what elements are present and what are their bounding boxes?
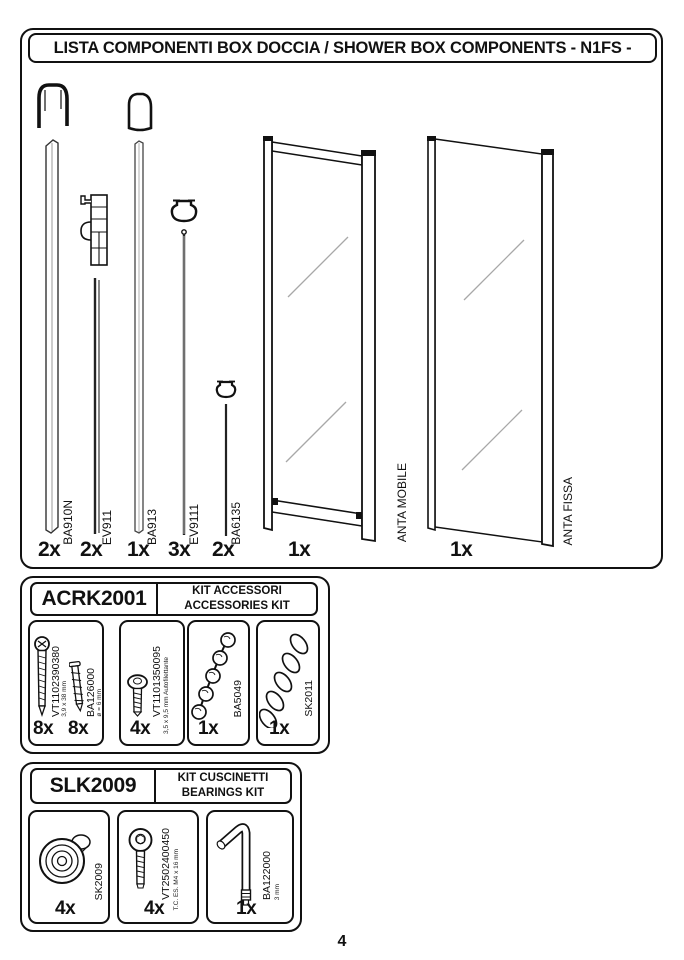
kit-title-en: ACCESSORIES KIT	[184, 599, 289, 614]
kit-item-cell: VT1101350095 3,5 x 9,5 mm Autofilettante…	[119, 620, 185, 746]
kit-item-spec: 3,9 x 38 mm	[62, 681, 69, 717]
long-screw-icon	[33, 636, 51, 718]
component-drawing-ba910n	[30, 78, 74, 538]
bracket-profile-icon	[76, 192, 114, 538]
kit-item-code: BA122000	[262, 851, 273, 900]
component-drawing-ev9111	[168, 196, 200, 538]
kit-title-it: KIT ACCESSORI	[192, 584, 282, 599]
kit-item-qty: 8x	[68, 718, 88, 740]
sliding-door-panel-icon	[258, 132, 398, 544]
kit-item-cell: SK2009 4x	[28, 810, 110, 924]
cover-caps-icon	[259, 628, 309, 728]
kit-item-qty: 1x	[236, 898, 256, 920]
kit-item-code: SK2011	[304, 680, 315, 717]
kit-title-it: KIT CUSCINETTI	[178, 771, 269, 786]
cap-profile-icon	[122, 90, 156, 538]
component-qty: 1x	[288, 538, 310, 562]
kit-item-code: VT1101350095	[152, 646, 163, 717]
component-drawing-ev911	[76, 192, 114, 538]
page-number: 4	[0, 933, 684, 951]
kit-item-qty: 1x	[269, 718, 289, 740]
component-qty: 3x	[168, 538, 190, 562]
component-qty: 2x	[38, 538, 60, 562]
kit-item-code: BA126000	[86, 668, 97, 717]
wall-anchor-icon	[69, 660, 86, 716]
kit-title-en: BEARINGS KIT	[182, 786, 264, 801]
component-qty: 1x	[127, 538, 149, 562]
kit-item-code: VT2502400450	[161, 828, 172, 900]
kit-item-cell: SK2011 1x	[256, 620, 320, 746]
kit-item-spec: ø = 6 mm	[97, 689, 104, 717]
accessories-kit-header: ACRK2001 KIT ACCESSORI ACCESSORIES KIT	[30, 582, 318, 616]
kit-item-spec: T.C. ES. M4 x 16 mm	[174, 849, 181, 910]
kit-item-qty: 1x	[198, 718, 218, 740]
u-channel-profile-icon	[30, 78, 74, 538]
components-sheet-page: LISTA COMPONENTI BOX DOCCIA / SHOWER BOX…	[0, 0, 684, 960]
kit-item-qty: 4x	[144, 898, 164, 920]
component-code-label: BA910N	[62, 500, 74, 545]
kit-item-qty: 8x	[33, 718, 53, 740]
kit-item-code: SK2009	[94, 863, 105, 900]
kit-item-cell: BA5049 1x	[187, 620, 250, 746]
component-qty: 1x	[450, 538, 472, 562]
component-code-label: ANTA MOBILE	[396, 463, 408, 542]
component-drawing-anta-fissa	[424, 130, 566, 550]
component-code-label: EV911	[101, 510, 113, 545]
kit-item-code: VT1102390380	[51, 646, 62, 717]
component-drawing-ba913	[122, 90, 156, 538]
ball-chain-icon	[191, 630, 237, 722]
grommet-clip-icon	[168, 196, 200, 538]
component-code-label: ANTA FISSA	[562, 477, 574, 545]
roller-wheel-icon	[36, 828, 96, 886]
kit-item-cell: VT1102390380 3,9 x 38 mm 8x BA126000 ø =…	[28, 620, 104, 746]
fixed-glass-panel-icon	[424, 130, 566, 550]
kit-item-spec: 3,5 x 9,5 mm Autofilettante	[164, 657, 171, 734]
kit-item-spec: 3 mm	[275, 884, 282, 900]
component-qty: 2x	[212, 538, 234, 562]
kit-code: SLK2009	[32, 770, 156, 802]
component-drawing-anta-mobile	[258, 132, 398, 544]
kit-item-cell: VT2502400450 T.C. ES. M4 x 16 mm 4x	[117, 810, 199, 924]
cap-screw-icon	[127, 828, 154, 890]
kit-item-qty: 4x	[55, 898, 75, 920]
kit-item-qty: 4x	[130, 718, 150, 740]
page-title: LISTA COMPONENTI BOX DOCCIA / SHOWER BOX…	[28, 33, 657, 63]
allen-key-icon	[212, 818, 256, 910]
short-screw-icon	[126, 674, 149, 718]
kit-code: ACRK2001	[32, 584, 158, 614]
component-qty: 2x	[80, 538, 102, 562]
bearings-kit-header: SLK2009 KIT CUSCINETTI BEARINGS KIT	[30, 768, 292, 804]
kit-title: KIT ACCESSORI ACCESSORIES KIT	[158, 584, 316, 614]
kit-title: KIT CUSCINETTI BEARINGS KIT	[156, 770, 290, 802]
kit-item-code: BA5049	[233, 680, 244, 717]
kit-item-cell: BA122000 3 mm 1x	[206, 810, 294, 924]
